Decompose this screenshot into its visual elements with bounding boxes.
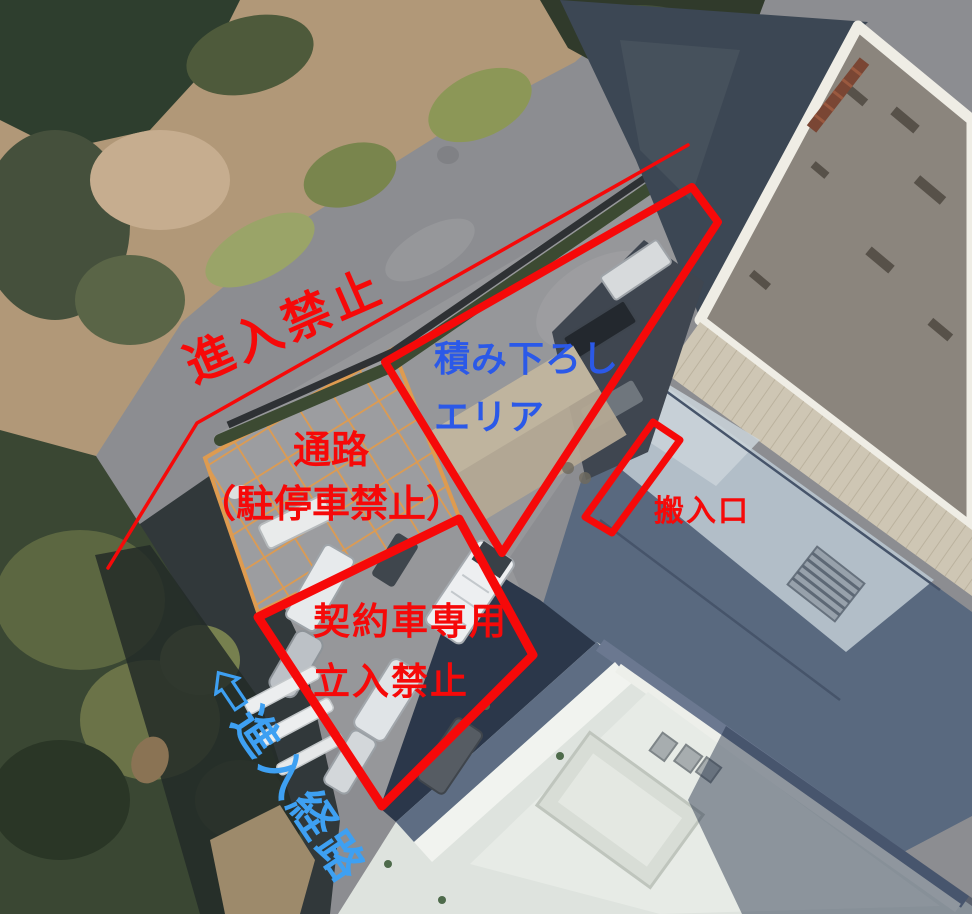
contract-area-label-line1: 契約車専用 bbox=[313, 592, 508, 652]
aerial-photo-background bbox=[0, 0, 972, 914]
contract-area-label: 契約車専用 立入禁止 bbox=[313, 592, 508, 712]
loading-area-label-line1: 積み下ろし bbox=[434, 330, 619, 388]
passage-label-line2: （駐停車禁止） bbox=[198, 478, 464, 532]
contract-area-label-line2: 立入禁止 bbox=[313, 652, 508, 712]
passage-label-line1: 通路 bbox=[198, 424, 464, 478]
annotated-aerial-map: 進入禁止 積み下ろし エリア 通路 （駐停車禁止） 搬入口 契約車専用 立入禁止… bbox=[0, 0, 972, 914]
entrance-label: 搬入口 bbox=[654, 495, 750, 530]
passage-label: 通路 （駐停車禁止） bbox=[198, 424, 464, 532]
